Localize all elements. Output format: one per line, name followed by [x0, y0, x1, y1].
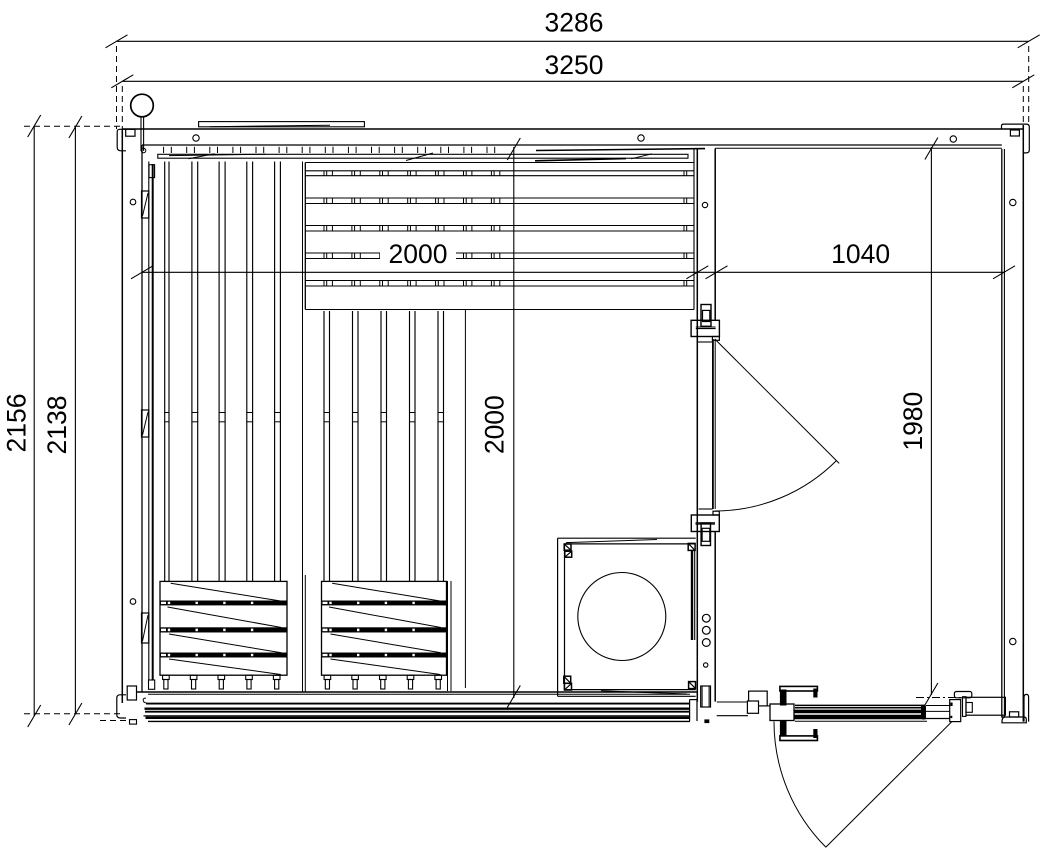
- svg-text:1980: 1980: [898, 392, 928, 451]
- svg-text:3286: 3286: [545, 8, 604, 38]
- svg-text:2000: 2000: [480, 395, 510, 454]
- svg-text:2156: 2156: [2, 394, 32, 453]
- svg-text:2000: 2000: [389, 239, 448, 269]
- svg-text:2138: 2138: [42, 396, 72, 455]
- svg-text:3250: 3250: [545, 50, 604, 80]
- svg-text:1040: 1040: [831, 239, 890, 269]
